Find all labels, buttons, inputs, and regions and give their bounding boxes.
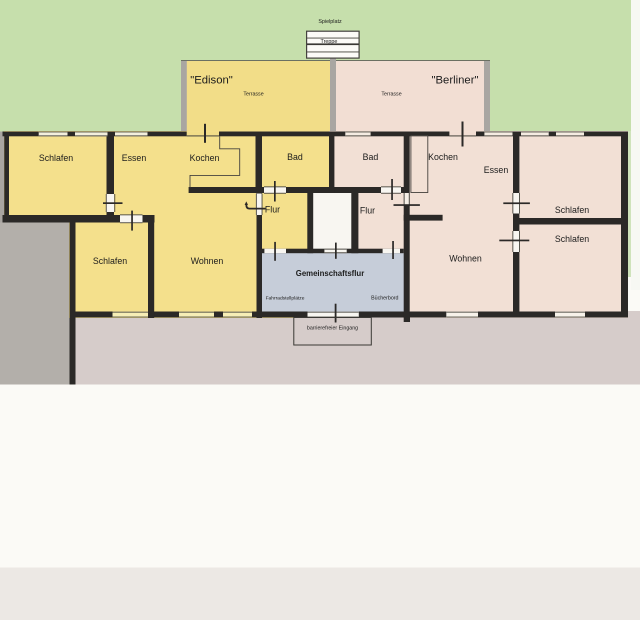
- svg-text:Gemeinschaftsflur: Gemeinschaftsflur: [296, 269, 364, 278]
- svg-text:Bad: Bad: [363, 152, 379, 162]
- svg-text:Kochen: Kochen: [190, 153, 220, 163]
- svg-text:Schlafen: Schlafen: [555, 234, 589, 244]
- svg-text:barrierefreier Eingang: barrierefreier Eingang: [307, 325, 358, 331]
- svg-text:Schlafen: Schlafen: [39, 153, 73, 163]
- svg-text:Essen: Essen: [484, 165, 509, 175]
- svg-text:Spielplatz: Spielplatz: [318, 19, 342, 25]
- svg-text:Bad: Bad: [287, 152, 303, 162]
- svg-text:Fahrradstellplätze: Fahrradstellplätze: [266, 296, 305, 302]
- svg-text:Bücherbord: Bücherbord: [371, 296, 398, 302]
- svg-text:Essen: Essen: [122, 153, 147, 163]
- svg-text:Flur: Flur: [360, 205, 375, 215]
- svg-text:Terrasse: Terrasse: [381, 91, 401, 97]
- svg-text:"Edison": "Edison": [190, 75, 233, 87]
- svg-text:"Berliner": "Berliner": [432, 75, 479, 87]
- svg-text:Wohnen: Wohnen: [449, 254, 482, 264]
- svg-text:Treppe: Treppe: [321, 39, 338, 45]
- svg-text:Wohnen: Wohnen: [191, 256, 224, 266]
- svg-text:Schlafen: Schlafen: [93, 256, 127, 266]
- svg-text:Schlafen: Schlafen: [555, 205, 589, 215]
- svg-text:Kochen: Kochen: [428, 152, 458, 162]
- svg-text:Flur: Flur: [265, 204, 280, 214]
- svg-text:Terrasse: Terrasse: [243, 91, 263, 97]
